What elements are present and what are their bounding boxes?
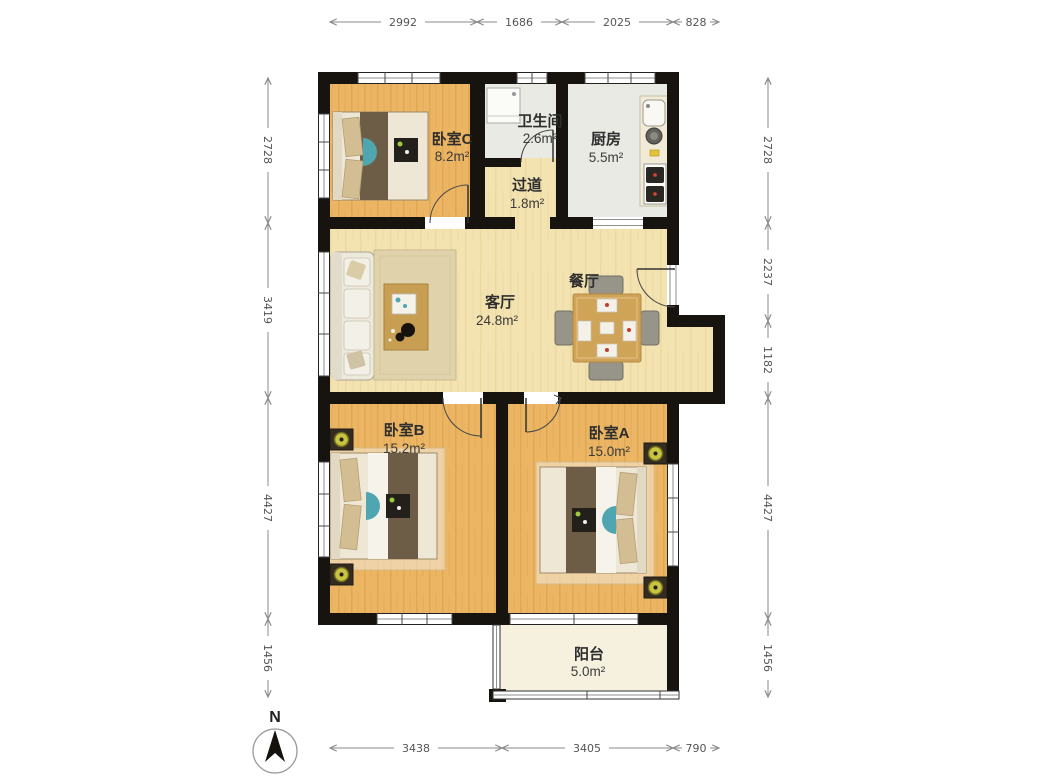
room-area-living: 24.8m² xyxy=(476,313,519,328)
room-label-kitchen: 厨房 xyxy=(591,130,621,148)
sofa xyxy=(331,252,374,380)
dining-chair xyxy=(589,362,623,380)
dim-bottom-3: 790 xyxy=(686,742,707,755)
dining-niche-floor xyxy=(667,327,713,392)
room-label-balcony: 阳台 xyxy=(574,645,604,663)
window-bedroom-c-left xyxy=(318,114,330,198)
window-living-left xyxy=(318,252,330,376)
room-label-bathroom: 卫生间 xyxy=(517,112,562,130)
window-bedroom-c-top xyxy=(358,72,440,84)
room-area-bedroom-b: 15.2m² xyxy=(383,441,426,456)
dim-left-2: 3419 xyxy=(261,296,274,324)
dim-right-2: 2237 xyxy=(761,258,774,286)
dim-left-3: 4427 xyxy=(261,494,274,522)
kitchen-doorway-threshold xyxy=(593,220,643,226)
dimension-left: 2728 3419 4427 1456 xyxy=(261,78,275,697)
dim-right-4: 4427 xyxy=(761,494,774,522)
kitchen-counter xyxy=(640,96,668,206)
dimension-right: 2728 2237 1182 4427 1456 xyxy=(761,78,775,697)
room-area-kitchen: 5.5m² xyxy=(589,150,624,165)
dim-bottom-1: 3438 xyxy=(402,742,430,755)
bed-headboard xyxy=(333,112,342,200)
bed-tray xyxy=(386,494,410,518)
dim-right-1: 2728 xyxy=(761,136,774,164)
dim-left-4: 1456 xyxy=(261,644,274,672)
dim-top-3: 2025 xyxy=(603,16,631,29)
bed-tray xyxy=(394,138,418,162)
washing-machine xyxy=(487,88,520,123)
dimension-top: 2992 1686 2025 828 xyxy=(330,15,719,29)
balcony-sliding-door xyxy=(510,613,638,625)
bed-pillow xyxy=(342,117,363,157)
dimension-bottom: 3438 3405 790 xyxy=(330,741,719,755)
dim-top-2: 1686 xyxy=(505,16,533,29)
window-kitchen-top xyxy=(585,72,655,84)
room-area-bathroom: 2.6m² xyxy=(523,131,558,146)
coffee-table xyxy=(384,284,428,350)
balcony-window-left xyxy=(493,625,500,689)
window-bedroom-b-left xyxy=(318,462,330,557)
dim-top-1: 2992 xyxy=(389,16,417,29)
bed-headboard xyxy=(637,467,646,573)
dining-chair xyxy=(641,311,659,345)
cutting-board xyxy=(650,150,659,156)
dining-chair xyxy=(555,311,573,345)
room-label-hallway: 过道 xyxy=(512,176,542,194)
dim-bottom-2: 3405 xyxy=(573,742,601,755)
dim-right-5: 1456 xyxy=(761,644,774,672)
room-area-bedroom-c: 8.2m² xyxy=(435,149,470,164)
dim-left-1: 2728 xyxy=(261,136,274,164)
table-tray xyxy=(392,294,416,314)
bed-pillow xyxy=(342,159,363,199)
compass-north-label: N xyxy=(269,709,281,726)
bed-headboard xyxy=(331,453,340,559)
decor-vase xyxy=(396,333,405,342)
room-area-bedroom-a: 15.0m² xyxy=(588,444,631,459)
dim-right-3: 1182 xyxy=(761,346,774,374)
compass-needle-icon xyxy=(265,730,285,762)
dim-top-4: 828 xyxy=(686,16,707,29)
room-label-living: 客厅 xyxy=(484,293,515,311)
room-label-bedroom-c: 卧室C xyxy=(432,130,473,148)
compass: N xyxy=(253,709,297,773)
room-label-bedroom-b: 卧室B xyxy=(384,421,425,439)
floor-plan-svg: 卧室C 8.2m² 卫生间 2.6m² 厨房 5.5m² 过道 1.8m² 客厅… xyxy=(0,0,1044,778)
window-bedroom-b-bottom xyxy=(377,613,452,625)
bed-tray xyxy=(572,508,596,532)
window-bedroom-a-right xyxy=(667,464,679,566)
room-label-bedroom-a: 卧室A xyxy=(589,424,630,442)
balcony-window-bottom xyxy=(493,691,679,699)
kitchen-sink xyxy=(643,100,665,126)
window-bathroom-top xyxy=(517,72,547,84)
room-area-balcony: 5.0m² xyxy=(571,664,606,679)
floor-plan-canvas: 卧室C 8.2m² 卫生间 2.6m² 厨房 5.5m² 过道 1.8m² 客厅… xyxy=(0,0,1044,778)
bed-bedroom-c xyxy=(333,112,428,200)
room-area-hallway: 1.8m² xyxy=(510,196,545,211)
place-setting xyxy=(578,321,591,341)
bed-bedroom-a xyxy=(536,443,667,598)
room-label-dining: 餐厅 xyxy=(569,272,599,290)
